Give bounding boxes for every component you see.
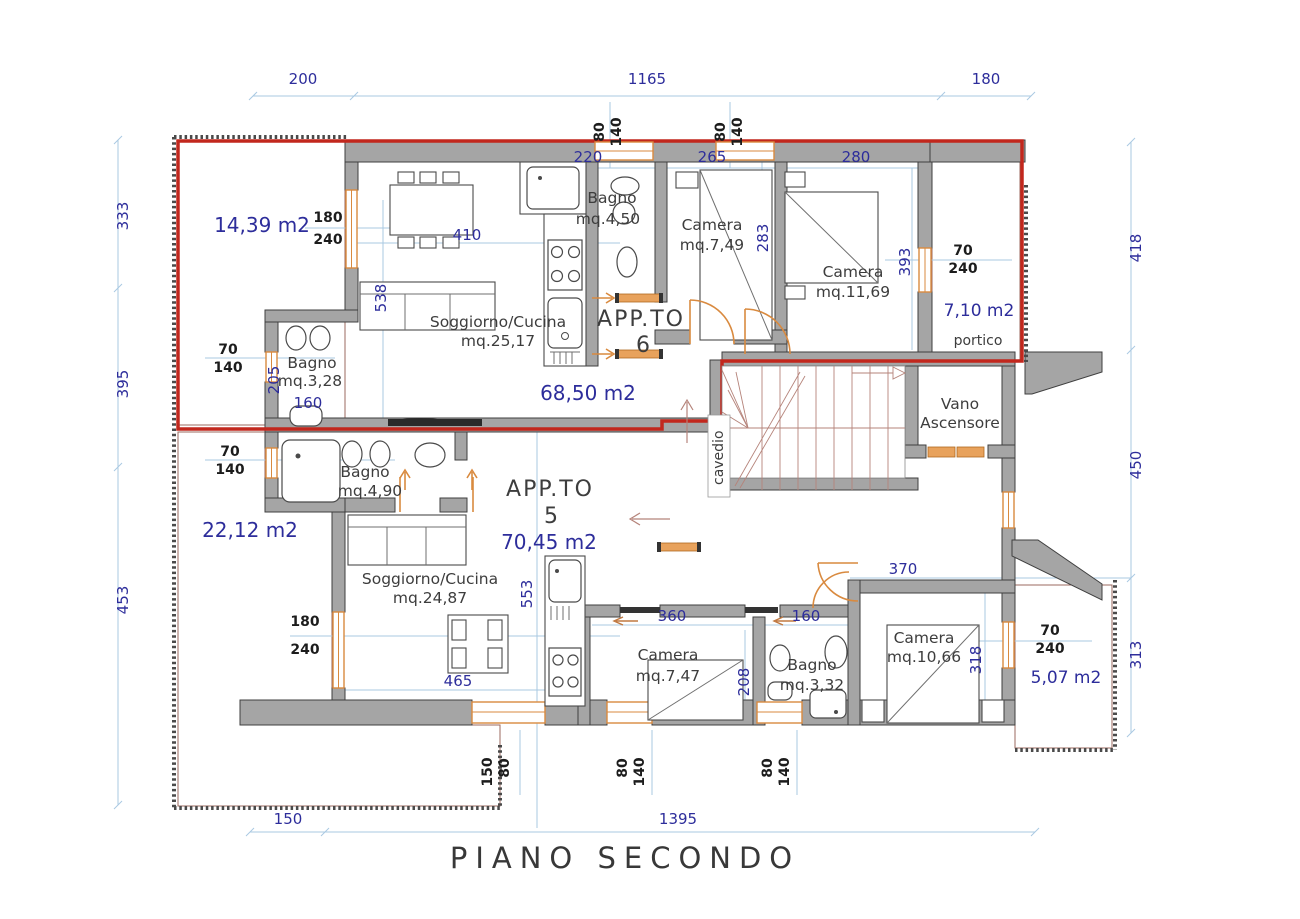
dim-top-1165: 1165: [628, 70, 666, 88]
dim-465: 465: [444, 672, 473, 690]
dim-160-bagno: 160: [294, 394, 323, 412]
dim-bottom-1395: 1395: [659, 810, 697, 828]
cavedio-label: cavedio: [711, 430, 727, 485]
dim-208: 208: [735, 668, 753, 697]
elevator-label-1: Vano: [941, 395, 979, 413]
window-70x240-balcony: [1003, 622, 1014, 668]
app5-area: 70,45 m2: [501, 530, 597, 554]
entry-sill-app5: [657, 542, 701, 552]
win-180-a: 180: [313, 210, 342, 226]
entry-sill-app6-1: [615, 293, 663, 303]
win-80-b: 80: [713, 122, 729, 142]
app6-area: 68,50 m2: [540, 381, 636, 405]
dim-bottom-150: 150: [274, 810, 303, 828]
win-240-a: 240: [313, 232, 342, 248]
win-140-c: 140: [213, 360, 242, 376]
floor-plan-drawing: 200 1165 180 333 395 453 418 450 313 150…: [0, 0, 1300, 919]
camera5-small-area: mq.7,47: [636, 667, 700, 685]
window-70x140-bagno5: [266, 448, 277, 478]
win-240-b: 240: [948, 261, 977, 277]
camera6-large-area: mq.11,69: [816, 283, 890, 301]
window-right-stair: [1003, 492, 1014, 528]
dim-top-200: 200: [289, 70, 318, 88]
win-180-b: 180: [290, 614, 319, 630]
window-150x80-bottom: [472, 702, 545, 723]
dim-538: 538: [372, 284, 390, 313]
dim-right-313: 313: [1127, 641, 1145, 670]
dim-right-450: 450: [1127, 451, 1145, 480]
dim-283: 283: [754, 224, 772, 253]
bagno6-main-name: Bagno: [587, 189, 636, 207]
win-70-b: 70: [953, 243, 973, 259]
bagno5-small-name: Bagno: [787, 656, 836, 674]
dim-360: 360: [658, 607, 687, 625]
window-180x240-left-app6: [346, 190, 357, 268]
bagno5-main-name: Bagno: [340, 463, 389, 481]
portico-label: portico: [954, 333, 1003, 349]
win-140-f: 140: [777, 757, 793, 786]
soggiorno6-name: Soggiorno/Cucina: [430, 313, 566, 331]
camera5-large-area: mq.10,66: [887, 648, 961, 666]
win-80-c: 80: [497, 758, 513, 778]
camera6-small-name: Camera: [682, 216, 743, 234]
camera6-small-area: mq.7,49: [680, 236, 744, 254]
bagno5-main-area: mq.4,90: [338, 482, 402, 500]
win-80-d: 80: [615, 758, 631, 778]
window-70x240-portico: [919, 248, 931, 292]
app6-title: APP.TO: [597, 307, 685, 332]
dim-280: 280: [842, 148, 871, 166]
camera5-large-name: Camera: [894, 629, 955, 647]
dim-left-333: 333: [114, 202, 132, 231]
stairwell: [708, 366, 905, 497]
dim-left-395: 395: [114, 370, 132, 399]
terrace-lower-area: 22,12 m2: [202, 518, 298, 542]
window-80x140-bottom-2: [757, 702, 802, 723]
corridor-arrow-left: [630, 513, 670, 525]
win-240-d: 240: [1035, 641, 1064, 657]
win-70-c: 70: [220, 444, 240, 460]
window-80x140-bottom-1: [607, 702, 652, 723]
dim-553: 553: [518, 580, 536, 609]
floor-plan-page: 200 1165 180 333 395 453 418 450 313 150…: [0, 0, 1300, 919]
dim-arrow-360: [614, 617, 638, 625]
win-70-a: 70: [218, 342, 238, 358]
soggiorno5-area: mq.24,87: [393, 589, 467, 607]
soggiorno6-area: mq.25,17: [461, 332, 535, 350]
dim-left-453: 453: [114, 586, 132, 615]
dim-318: 318: [967, 646, 985, 675]
dim-265: 265: [698, 148, 727, 166]
win-140-e: 140: [632, 757, 648, 786]
win-70-d: 70: [1040, 623, 1060, 639]
win-80-e: 80: [760, 758, 776, 778]
bagno6-small-name: Bagno: [287, 354, 336, 372]
dim-393: 393: [896, 248, 914, 277]
elevator-label-2: Ascensore: [920, 414, 1000, 432]
dim-220: 220: [574, 148, 603, 166]
balcony-area: 5,07 m2: [1031, 668, 1102, 688]
win-140-b: 140: [730, 117, 746, 146]
bagno5-small-area: mq.3,32: [780, 676, 844, 694]
window-180x240-left-app5: [333, 612, 344, 688]
camera6-large-name: Camera: [823, 263, 884, 281]
app5-title: APP.TO: [506, 477, 594, 502]
win-80-a: 80: [592, 122, 608, 142]
app5-number: 5: [544, 504, 560, 529]
win-140-a: 140: [609, 117, 625, 146]
win-150-a: 150: [480, 757, 496, 786]
dim-right-418: 418: [1127, 234, 1145, 263]
app6-number: 6: [636, 333, 652, 358]
dim-160-camera: 160: [792, 607, 821, 625]
bagno6-main-area: mq.4,50: [576, 210, 640, 228]
bagno6-small-area: mq.3,28: [278, 372, 342, 390]
portico-area: 7,10 m2: [944, 301, 1015, 321]
soggiorno5-name: Soggiorno/Cucina: [362, 570, 498, 588]
win-240-c: 240: [290, 642, 319, 658]
terrace-upper-area: 14,39 m2: [214, 213, 310, 237]
dim-top-180: 180: [972, 70, 1001, 88]
win-140-d: 140: [215, 462, 244, 478]
dim-410: 410: [453, 226, 482, 244]
camera5-small-name: Camera: [638, 646, 699, 664]
door-arrow-corridor5: [467, 470, 477, 490]
drawing-title: PIANO SECONDO: [450, 841, 800, 875]
dim-370: 370: [889, 560, 918, 578]
